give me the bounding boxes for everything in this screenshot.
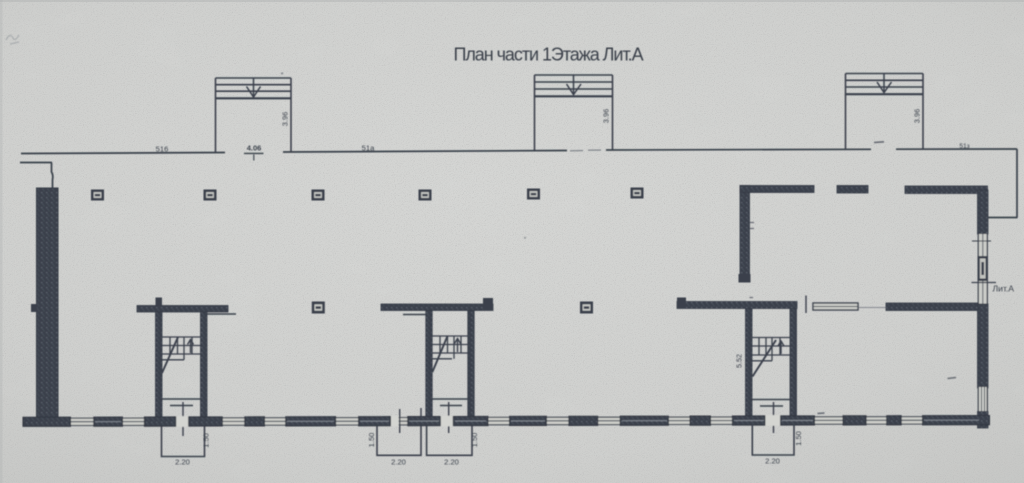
- svg-text:1.50: 1.50: [202, 433, 211, 448]
- svg-text:5.52: 5.52: [735, 354, 744, 368]
- svg-text:1.50: 1.50: [470, 433, 479, 448]
- svg-text:3.96: 3.96: [281, 112, 290, 126]
- svg-text:2.20: 2.20: [175, 458, 190, 467]
- svg-text:Лит.А: Лит.А: [993, 284, 1015, 294]
- svg-text:4.06: 4.06: [247, 144, 262, 153]
- svg-text:516: 516: [156, 145, 169, 154]
- svg-text:3.96: 3.96: [602, 109, 611, 123]
- svg-text:1.50: 1.50: [794, 431, 803, 446]
- svg-text:План части 1Этажа Лит.А: План части 1Этажа Лит.А: [453, 45, 643, 65]
- svg-text:1.50: 1.50: [367, 433, 376, 448]
- svg-text:2.20: 2.20: [391, 458, 406, 467]
- svg-text:3.96: 3.96: [913, 109, 922, 123]
- svg-text:51з: 51з: [959, 143, 969, 150]
- svg-text:51а: 51а: [362, 144, 375, 153]
- svg-text:2.20: 2.20: [444, 458, 459, 467]
- svg-text:2.20: 2.20: [765, 457, 780, 466]
